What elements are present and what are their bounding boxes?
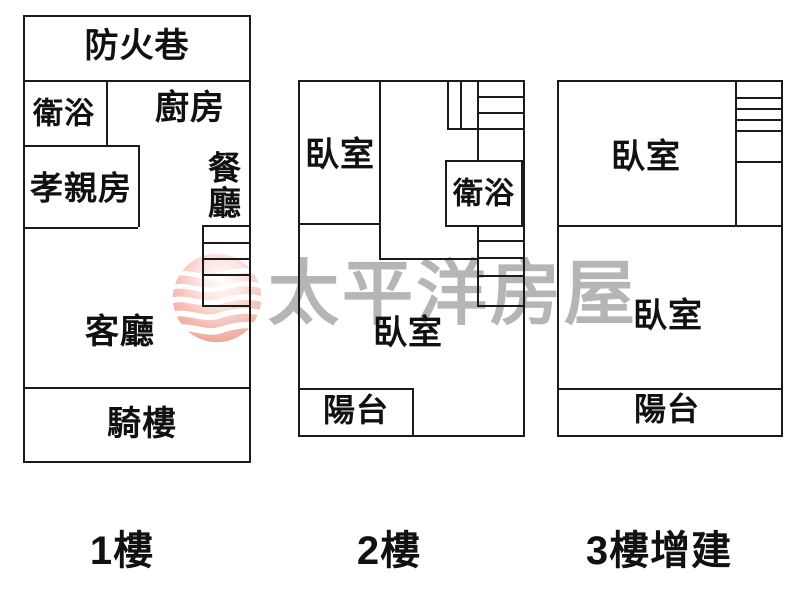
wall-segment — [106, 80, 108, 145]
stair-tread — [477, 240, 525, 242]
room-label-bathroom-2f: 衛浴 — [453, 178, 515, 210]
stair-tread — [735, 161, 783, 163]
room-label-bedroom-main-2f: 臥室 — [373, 316, 443, 352]
stair-tread — [202, 242, 251, 244]
room-label-kitchen: 廚房 — [155, 91, 225, 127]
stair-tread — [735, 130, 783, 132]
room-label-balcony-2f: 陽台 — [323, 394, 389, 428]
floor3-outline — [557, 80, 783, 437]
wall-segment — [379, 258, 479, 260]
stair-tread — [477, 96, 525, 98]
wall-segment — [379, 80, 381, 258]
wall-segment — [460, 80, 462, 128]
wall-segment — [23, 387, 251, 389]
room-label-bedroom-main-3f: 臥室 — [633, 299, 703, 335]
room-label-living-room: 客廳 — [85, 315, 155, 351]
wall-segment — [23, 227, 138, 229]
stair-tread — [477, 257, 525, 259]
room-label-parents-room: 孝親房 — [30, 172, 132, 207]
room-label-arcade: 騎樓 — [107, 407, 177, 443]
wall-segment — [447, 80, 449, 128]
wall-segment — [138, 145, 140, 227]
stair-tread — [447, 128, 525, 130]
room-label-balcony-3f: 陽台 — [634, 393, 700, 427]
room-label-dining-room: 餐廳 — [207, 151, 243, 220]
stair-tread — [735, 119, 783, 121]
stair-tread — [735, 108, 783, 110]
wall-segment — [298, 388, 412, 390]
stair-tread — [202, 274, 251, 276]
wall-segment — [735, 80, 737, 225]
stair-tread — [477, 275, 525, 277]
wall-segment — [412, 388, 414, 437]
wall-segment — [298, 223, 381, 225]
floor-plan-canvas: 太平洋房屋 防火巷 衛浴 廚房 孝親房 餐廳 客廳 騎樓 臥室 衛浴 臥室 陽台 — [0, 0, 800, 590]
stair-tread — [202, 258, 251, 260]
room-label-fire-lane: 防火巷 — [85, 29, 190, 65]
floor3-caption: 3樓增建 — [586, 518, 732, 576]
floor2-caption: 2樓 — [357, 518, 421, 576]
wall-segment — [557, 388, 783, 390]
stair-tread — [735, 97, 783, 99]
room-label-bedroom-upper-3f: 臥室 — [611, 140, 681, 176]
wall-segment — [557, 225, 783, 227]
room-label-bedroom-upper-2f: 臥室 — [305, 138, 375, 174]
stair-tread — [477, 305, 525, 307]
room-label-bathroom-1f: 衛浴 — [33, 98, 95, 130]
stair-tread — [477, 112, 525, 114]
wall-segment — [23, 80, 251, 82]
wall-segment — [23, 145, 138, 147]
floor1-caption: 1樓 — [90, 518, 154, 576]
floor1-staircase — [202, 225, 251, 307]
